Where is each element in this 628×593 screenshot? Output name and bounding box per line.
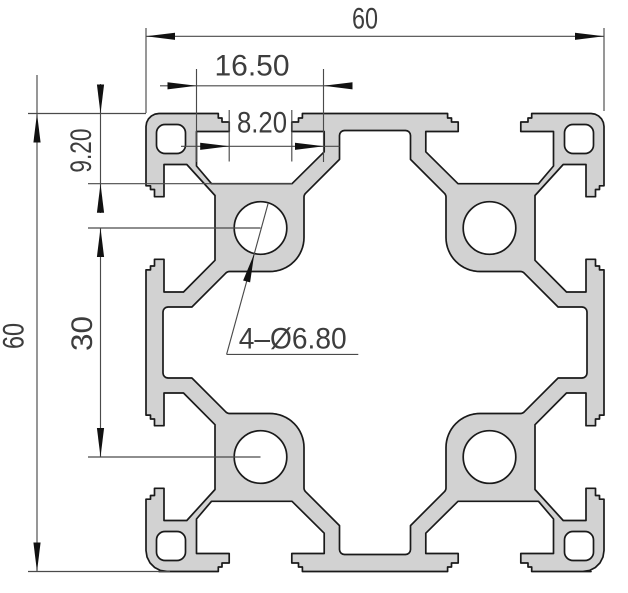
- svg-text:4–Ø6.80: 4–Ø6.80: [239, 323, 347, 356]
- svg-text:16.50: 16.50: [214, 50, 289, 83]
- svg-text:60: 60: [0, 323, 31, 349]
- svg-text:9.20: 9.20: [65, 129, 98, 173]
- svg-text:60: 60: [352, 3, 378, 36]
- svg-text:8.20: 8.20: [237, 107, 287, 140]
- svg-text:30: 30: [66, 316, 99, 351]
